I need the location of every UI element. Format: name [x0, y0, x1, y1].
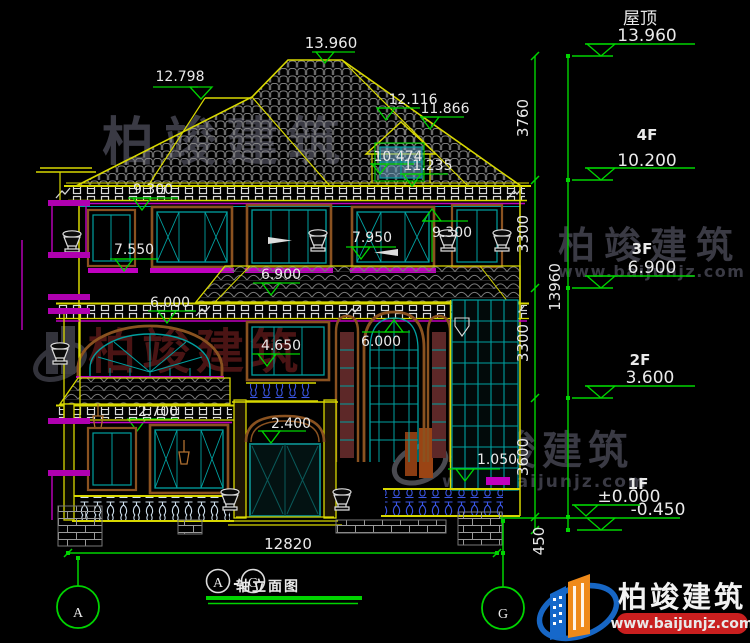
brick-pier-right [458, 512, 502, 545]
level-3f-name: 3F [632, 240, 653, 258]
dim-arch-2f: 6.000 [361, 334, 401, 350]
dim-canopy-left: 6.000 [150, 295, 190, 311]
dim-canopy-2f: 6.900 [261, 267, 301, 283]
watermark-center-bar2 [419, 428, 433, 478]
dim-ridge: 13.960 [305, 34, 358, 52]
dim-dormer-ridge: 11.866 [421, 101, 470, 117]
cad-elevation-drawing: 柏竣建筑 柏竣建筑 www.baijunjz.com 柏竣建筑 柏竣建筑 www… [0, 0, 750, 643]
level-4f-name: 4F [637, 126, 658, 144]
dim-sill-1f: 1.050 [477, 452, 517, 468]
flower-pot-6 [333, 489, 351, 510]
logo-building-orange [568, 574, 590, 638]
dim-door-1f: 2.400 [271, 416, 311, 432]
bay-ledge-1 [48, 200, 90, 206]
axis-label-left: A [73, 606, 84, 621]
axis-label-right: G [498, 607, 508, 622]
dim-eave-left: 9.300 [133, 182, 173, 198]
watermark-center-bar1 [405, 432, 417, 476]
dim-window-3f-left: 7.550 [114, 242, 154, 258]
arch-narrow-right-glass [432, 332, 446, 458]
logo-brand-text: 柏竣建筑 [618, 580, 746, 614]
vdim-3300a: 3300 [514, 215, 532, 253]
bay-ledge-5 [48, 418, 90, 424]
logo-site-text: www.baijunjz.com [611, 616, 750, 632]
eave-band-3f [56, 187, 527, 207]
brick-base-center [336, 520, 446, 533]
vdim-450: 450 [530, 527, 548, 556]
sill-3f-bay [88, 268, 138, 273]
title-label: 轴立面图 [236, 578, 300, 595]
level-roof-elev: 13.960 [617, 26, 676, 46]
dim-eave-right: 9.300 [432, 225, 472, 241]
level-1f-elev-below: -0.450 [631, 500, 686, 520]
sill-marker-magenta [486, 477, 510, 485]
vdim-3760: 3760 [514, 99, 532, 137]
dim-window-3f-right: 7.950 [352, 230, 392, 246]
arch-narrow-left-glass [340, 332, 354, 458]
drawing-canvas: 柏竣建筑 柏竣建筑 www.baijunjz.com 柏竣建筑 柏竣建筑 www… [0, 0, 750, 643]
vdim-total-13960: 13960 [546, 263, 564, 311]
flower-pot-4 [493, 230, 511, 251]
balustrade-right [385, 490, 503, 515]
vdim-3600: 3600 [514, 438, 532, 476]
title-axis-start: A [213, 576, 224, 591]
vdim-3300b: 3300 [514, 324, 532, 362]
bay-ledge-6 [48, 470, 90, 476]
dim-dormer-eave: 11.235 [404, 158, 453, 174]
flower-pot-bay [51, 343, 69, 364]
bay-ledge-4 [48, 308, 90, 314]
bay-ledge-3 [48, 294, 90, 300]
dim-sill-2f: 4.650 [261, 338, 301, 354]
brick-step [178, 520, 202, 534]
dim-left-ridge: 12.798 [156, 69, 205, 85]
flower-pot-2 [309, 230, 327, 251]
flower-pot-1 [63, 231, 81, 252]
porch-roof [60, 378, 230, 404]
juliet-balusters [250, 384, 312, 400]
level-2f-elev: 3.600 [626, 368, 675, 388]
flower-pot-5 [221, 489, 239, 510]
logo-building-blue [550, 586, 566, 640]
level-2f-name: 2F [630, 351, 651, 369]
bay-ledge-2 [48, 252, 90, 258]
brick-pier-left [58, 506, 102, 546]
door-column-right [324, 400, 336, 518]
level-3f-elev: 6.900 [628, 258, 677, 278]
dim-overall-width: 12820 [264, 535, 312, 553]
dentil-band-1f [58, 407, 232, 419]
